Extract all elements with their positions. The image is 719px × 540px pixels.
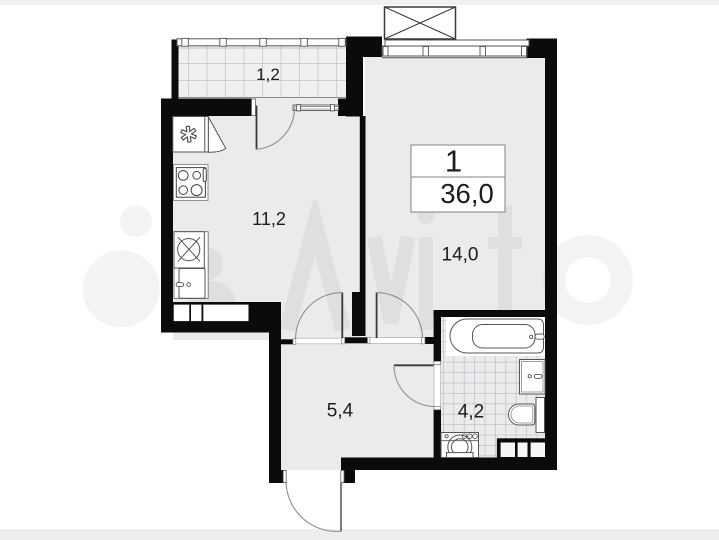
svg-text:5,4: 5,4 (327, 401, 354, 422)
svg-text:4,2: 4,2 (458, 402, 484, 423)
svg-text:36,0: 36,0 (440, 178, 494, 209)
svg-text:14,0: 14,0 (442, 245, 479, 266)
svg-text:11,2: 11,2 (252, 209, 286, 229)
svg-text:1: 1 (445, 144, 462, 179)
svg-text:1,2: 1,2 (256, 65, 280, 84)
